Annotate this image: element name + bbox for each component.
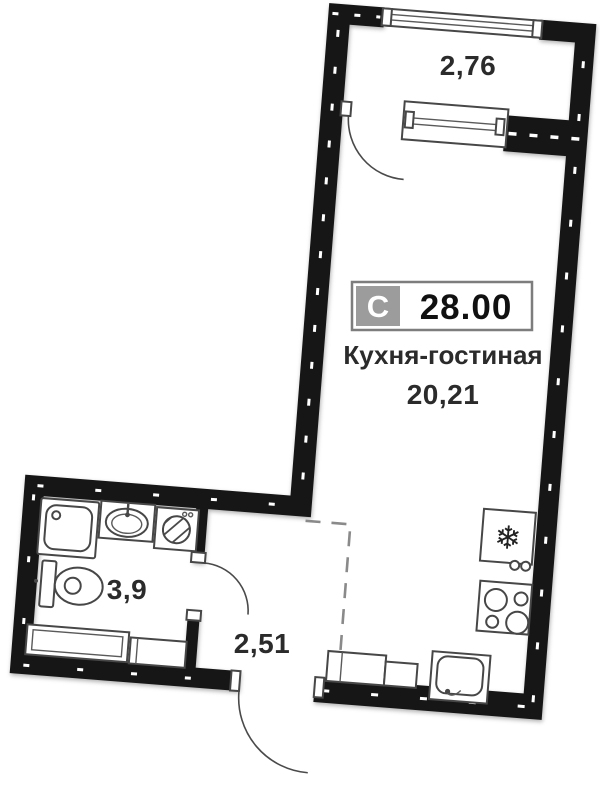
label-hallway-area: 2,51	[234, 628, 291, 659]
balcony-door-arc	[344, 115, 409, 180]
snowflake-icon: ❄	[493, 519, 523, 557]
label-kitchen-living-name: Кухня-гостиная	[343, 340, 542, 370]
door-jambs	[181, 92, 369, 697]
window-balcony-top	[382, 8, 543, 38]
plan-geometry: ❄	[4, 0, 597, 786]
bathroom-sink	[99, 501, 156, 542]
area-badge: С 28.00	[352, 282, 532, 330]
badge-total-area: 28.00	[420, 288, 513, 327]
label-kitchen-living-area: 20,21	[407, 379, 480, 410]
kitchen-sink	[429, 651, 491, 703]
label-bathroom-area: 3,9	[107, 574, 147, 605]
fridge: ❄	[479, 509, 535, 571]
wall-balcony-block	[503, 115, 589, 157]
washing-machine	[150, 501, 202, 553]
window-balcony-door-block	[402, 101, 509, 147]
floor-plan-image: ❄ 2,76 С 28.00 Кухня-гостиная 20,21	[0, 0, 600, 786]
floor-plan: ❄ 2,76 С 28.00 Кухня-гостиная 20,21	[0, 0, 600, 786]
stove	[476, 581, 532, 635]
toilet	[32, 560, 104, 611]
wall-left	[289, 3, 351, 517]
kitchen-boundary-dashed-line	[295, 521, 350, 654]
badge-letter: С	[367, 289, 389, 324]
shower-tray	[37, 498, 99, 558]
bathroom-duct-box	[129, 637, 187, 667]
hall-cabinet	[326, 651, 418, 688]
label-balcony-area: 2,76	[440, 50, 497, 81]
entrance-door-arc	[233, 692, 314, 773]
bathroom-door-arc	[200, 563, 252, 615]
